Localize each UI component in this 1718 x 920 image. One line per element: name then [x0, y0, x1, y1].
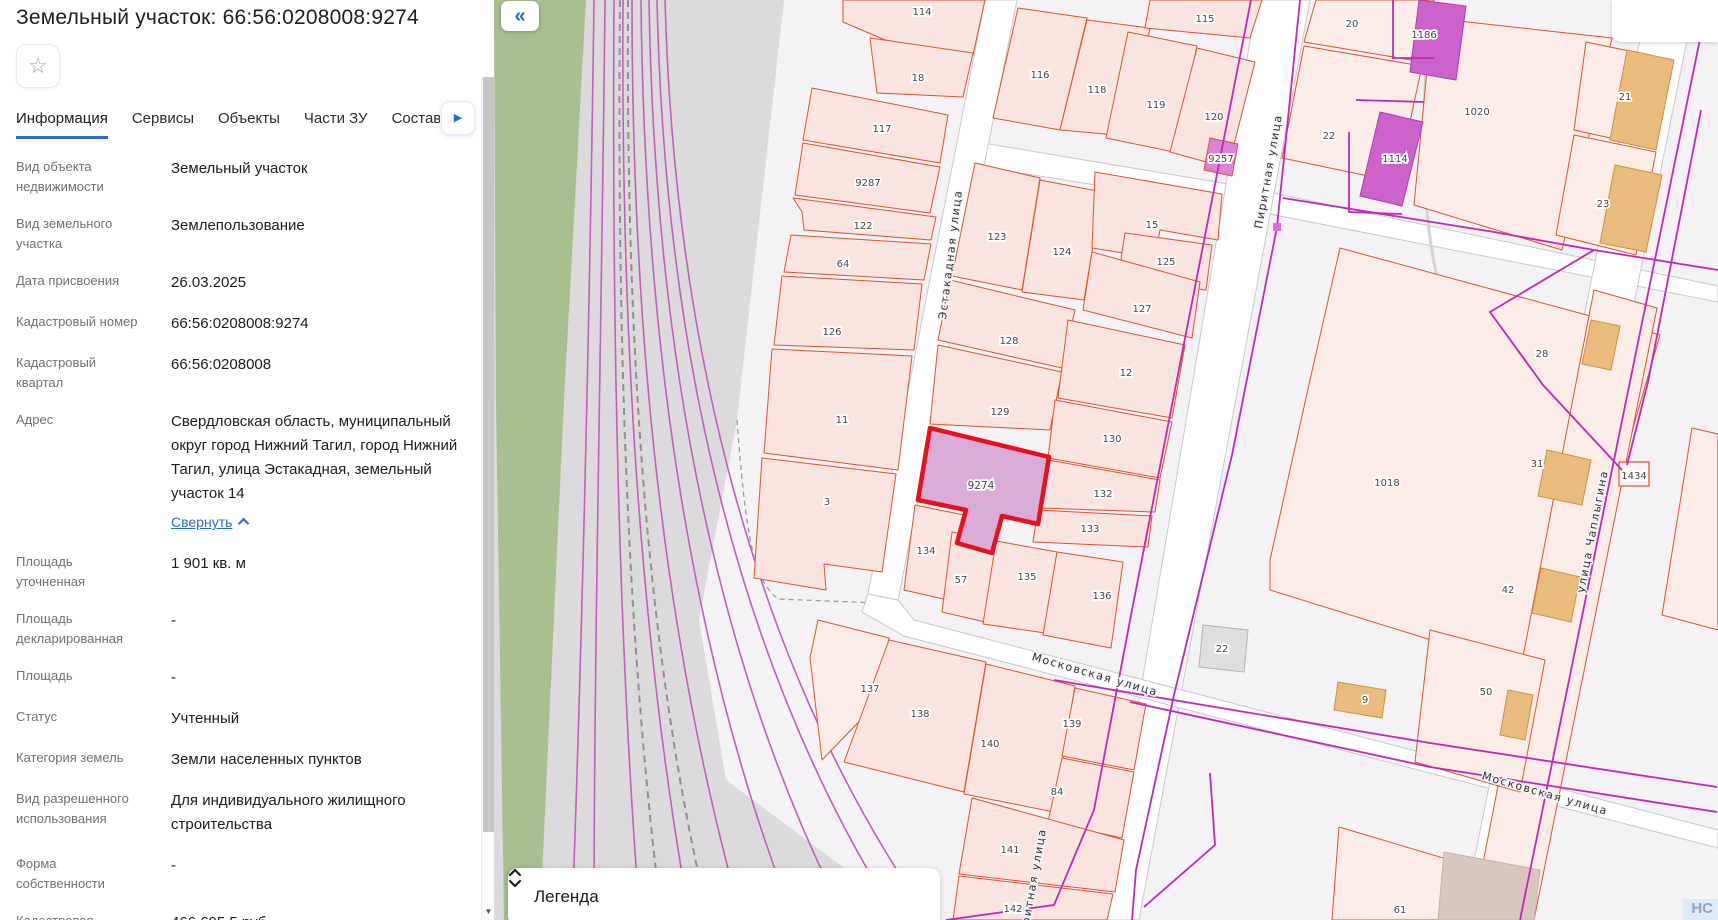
field-value-text: Земли населенных пунктов [171, 751, 362, 768]
parcel-126[interactable] [774, 276, 922, 350]
parcel-number-label: 9 [1362, 695, 1368, 706]
parcel-number-label: 57 [955, 575, 968, 586]
field-value: Землепользование [171, 214, 471, 254]
chevron-right-icon: ▶ [454, 113, 462, 124]
parcel-number-label: 127 [1132, 304, 1151, 315]
parcel-number-label: 126 [822, 327, 841, 338]
field-value: 26.03.2025 [171, 271, 471, 295]
parcel-number-label: 138 [910, 709, 929, 720]
parcel-number-label: 9257 [1208, 154, 1233, 165]
parcel-number-label: 9287 [855, 178, 880, 189]
tab-information[interactable]: Информация [16, 104, 108, 139]
field-row: Площадь уточненная1 901 кв. м [16, 552, 471, 592]
field-value: Свердловская область, муниципальный окру… [171, 410, 471, 535]
nspd-watermark: НС [1683, 899, 1718, 920]
field-label: Статус [16, 707, 144, 731]
field-row: Вид объекта недвижимостиЗемельный участо… [16, 157, 471, 197]
parcel-number-label: 1020 [1464, 107, 1489, 118]
field-value: 1 901 кв. м [171, 552, 471, 592]
field-label: Вид земельного участка [16, 214, 144, 254]
parcel-number-label: 130 [1102, 434, 1121, 445]
field-value-text: 1 901 кв. м [171, 555, 246, 572]
field-row: СтатусУчтенный [16, 707, 471, 731]
field-label: Вид разрешенного использования [16, 789, 144, 837]
parcel-number-label: 128 [999, 336, 1018, 347]
parcel-number-label: 18 [912, 73, 925, 84]
tabs-scroll-right-button[interactable]: ▶ [441, 101, 475, 135]
field-value-text: Для индивидуального жилищного строительс… [171, 792, 406, 833]
parcel-number-label: 119 [1146, 100, 1165, 111]
field-row: АдресСвердловская область, муниципальный… [16, 410, 471, 535]
collapse-address-link[interactable]: Свернуть [171, 510, 249, 534]
field-label: Кадастровая стоимость [16, 911, 144, 920]
parcel-number-label: 116 [1030, 70, 1049, 81]
tab-composition[interactable]: Состав ЕЗП [392, 104, 440, 139]
parcel-number-label: 117 [872, 124, 891, 135]
parcel-number-label: 1018 [1374, 478, 1399, 489]
tab-bar: Информация Сервисы Объекты Части ЗУ Сост… [16, 104, 440, 139]
parcel-number-label: 140 [980, 739, 999, 750]
field-row: Кадастровая стоимость466 695,5 руб. [16, 911, 471, 920]
expand-collapse-icon[interactable] [508, 868, 522, 888]
info-panel-content: Земельный участок: 66:56:0208008:9274 ☆ … [0, 0, 481, 920]
parcel-number-label: 122 [853, 221, 872, 232]
field-label: Адрес [16, 410, 144, 535]
field-value: Земельный участок [171, 157, 471, 197]
field-row: Кадастровый номер66:56:0208008:9274 [16, 312, 471, 336]
chevron-up-icon [238, 518, 249, 529]
field-row: Дата присвоения26.03.2025 [16, 271, 471, 295]
field-label: Площадь декларированная [16, 609, 144, 649]
parcel-number-label: 134 [916, 546, 935, 557]
field-value-text: 66:56:0208008:9274 [171, 315, 309, 332]
parcel-number-label: 42 [1502, 585, 1515, 596]
star-icon: ☆ [28, 55, 48, 77]
parcel-number-label: 120 [1204, 112, 1223, 123]
parcel-number-label: 139 [1062, 719, 1081, 730]
field-label: Кадастровый квартал [16, 353, 144, 393]
parcel-number-label: 12 [1120, 368, 1133, 379]
field-value: 66:56:0208008 [171, 353, 471, 393]
field-label: Дата присвоения [16, 271, 144, 295]
parcel-number-label: 124 [1052, 247, 1071, 258]
field-rows: Вид объекта недвижимостиЗемельный участо… [0, 157, 481, 920]
field-value-text: Учтенный [171, 710, 239, 727]
field-label: Категория земель [16, 748, 144, 772]
parcel-number-label: 1186 [1411, 30, 1436, 41]
parcel-number-label: 22 [1323, 131, 1336, 142]
tab-objects[interactable]: Объекты [218, 104, 280, 139]
parcel-number-label: 114 [912, 7, 931, 18]
parcel-number-label: 115 [1195, 14, 1214, 25]
parcel-number-label: 133 [1080, 524, 1099, 535]
field-label: Площадь [16, 666, 144, 690]
parcel-number-label: 137 [860, 684, 879, 695]
field-value: 66:56:0208008:9274 [171, 312, 471, 336]
legend-title: Легенда [534, 887, 918, 907]
parcel-number-label: 3 [824, 497, 830, 508]
map-svg[interactable]: Эстакадная улицаПиритная улицаПиритная у… [494, 0, 1718, 920]
field-value: 466 695,5 руб. [171, 911, 471, 920]
field-label: Вид объекта недвижимости [16, 157, 144, 197]
parcel-number-label: 31 [1531, 459, 1544, 470]
info-panel: Земельный участок: 66:56:0208008:9274 ☆ … [0, 0, 494, 920]
map-control-box[interactable] [1612, 0, 1718, 42]
field-value: Учтенный [171, 707, 471, 731]
parcel-number-label: 125 [1156, 257, 1175, 268]
page-title: Земельный участок: 66:56:0208008:9274 [16, 6, 481, 30]
tab-parcel-parts[interactable]: Части ЗУ [304, 104, 368, 139]
field-value: Для индивидуального жилищного строительс… [171, 789, 471, 837]
parcel-number-label: 84 [1051, 787, 1064, 798]
parcel-number-label: 28 [1536, 349, 1549, 360]
cadastral-map-app: Земельный участок: 66:56:0208008:9274 ☆ … [0, 0, 1718, 920]
field-value-text: Свердловская область, муниципальный окру… [171, 413, 457, 502]
field-value-text: - [171, 857, 176, 874]
field-value: Земли населенных пунктов [171, 748, 471, 772]
field-value: - [171, 609, 471, 649]
tan-building [1538, 450, 1591, 505]
field-value-text: - [171, 612, 176, 629]
scrollbar-thumb[interactable] [483, 77, 494, 832]
collapse-panel-button[interactable]: « [501, 1, 539, 31]
field-label: Кадастровый номер [16, 312, 144, 336]
field-row: Вид разрешенного использованияДля индиви… [16, 789, 471, 837]
field-value-text: 26.03.2025 [171, 274, 246, 291]
parcel-number-label: 142 [1003, 904, 1022, 915]
parcel-number-label: 1114 [1382, 154, 1407, 165]
field-row: Кадастровый квартал66:56:0208008 [16, 353, 471, 393]
parcel-number-label: 136 [1092, 591, 1111, 602]
parcel-number-label: 64 [837, 259, 850, 270]
parcel-number-label: 141 [1000, 845, 1019, 856]
field-row: Вид земельного участкаЗемлепользование [16, 214, 471, 254]
field-row: Форма собственности- [16, 854, 471, 894]
field-row: Площадь- [16, 666, 471, 690]
field-value-text: Землепользование [171, 217, 305, 234]
collapse-address-label: Свернуть [171, 510, 232, 534]
map-canvas[interactable]: Эстакадная улицаПиритная улицаПиритная у… [494, 0, 1718, 920]
parcel-number-label: 123 [987, 232, 1006, 243]
field-value: - [171, 854, 471, 894]
parcel-number-label: 20 [1346, 19, 1359, 30]
parcel-number-label: 22 [1216, 644, 1229, 655]
field-value-text: - [171, 669, 176, 686]
scrollbar-down-arrow[interactable]: ▼ [482, 907, 495, 916]
parcel-number-label: 11 [836, 415, 849, 426]
parcel-number-label: 61 [1394, 905, 1407, 916]
field-value-text: Земельный участок [171, 160, 308, 177]
parcel-number-label: 21 [1619, 92, 1632, 103]
field-row: Площадь декларированная- [16, 609, 471, 649]
legend-panel[interactable]: Легенда [508, 868, 940, 920]
field-value-text: 66:56:0208008 [171, 356, 271, 373]
field-label: Площадь уточненная [16, 552, 144, 592]
field-value: - [171, 666, 471, 690]
parcel-number-label: 129 [990, 407, 1009, 418]
parcel-11[interactable] [764, 349, 912, 470]
parcel-number-label: 15 [1146, 220, 1159, 231]
tan-building [1532, 568, 1580, 622]
field-value-text: 466 695,5 руб. [171, 914, 271, 920]
field-label: Форма собственности [16, 854, 144, 894]
field-row: Категория земельЗемли населенных пунктов [16, 748, 471, 772]
tab-services[interactable]: Сервисы [132, 104, 194, 139]
parcel-number-label: 9274 [968, 480, 995, 492]
panel-scrollbar[interactable]: ▼ [481, 77, 494, 920]
utility-node [1273, 223, 1281, 231]
parcel-number-label: 23 [1597, 199, 1610, 210]
parcel-number-label: 1434 [1621, 471, 1646, 482]
favorite-button[interactable]: ☆ [16, 44, 60, 88]
parcel-number-label: 50 [1480, 687, 1493, 698]
parcel-number-label: 132 [1093, 489, 1112, 500]
parcel-number-label: 118 [1087, 85, 1106, 96]
parcel-number-label: 135 [1017, 572, 1036, 583]
